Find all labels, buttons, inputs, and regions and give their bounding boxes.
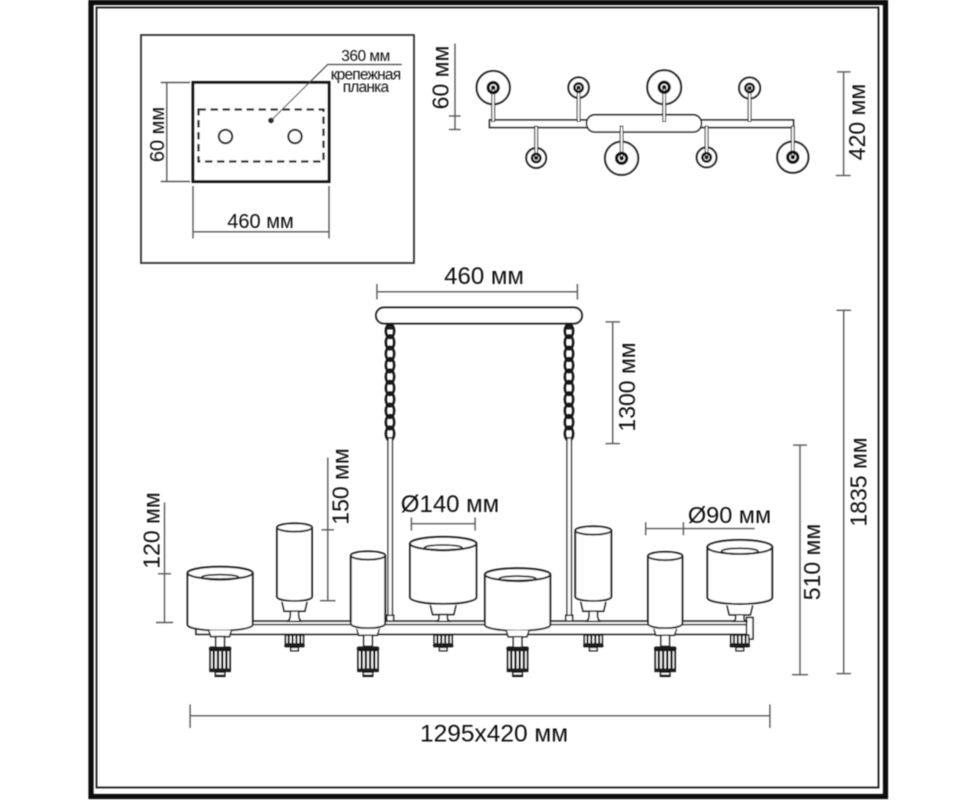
svg-text:Ø140 мм: Ø140 мм (401, 491, 499, 518)
svg-text:420 мм: 420 мм (844, 84, 870, 160)
svg-text:1835 мм: 1835 мм (846, 437, 872, 526)
svg-text:планка: планка (343, 79, 390, 96)
svg-text:510 мм: 510 мм (799, 524, 825, 600)
svg-text:Ø90 мм: Ø90 мм (688, 502, 771, 528)
svg-text:120 мм: 120 мм (139, 492, 165, 568)
svg-text:150 мм: 150 мм (328, 448, 354, 524)
svg-text:1295x420 мм: 1295x420 мм (420, 721, 568, 748)
svg-text:1300 мм: 1300 мм (614, 342, 640, 431)
svg-text:60 мм: 60 мм (147, 107, 169, 162)
svg-text:60 мм: 60 мм (428, 46, 454, 110)
svg-text:460 мм: 460 мм (444, 263, 524, 290)
svg-text:460 мм: 460 мм (227, 211, 293, 233)
svg-text:360 мм: 360 мм (341, 48, 389, 65)
